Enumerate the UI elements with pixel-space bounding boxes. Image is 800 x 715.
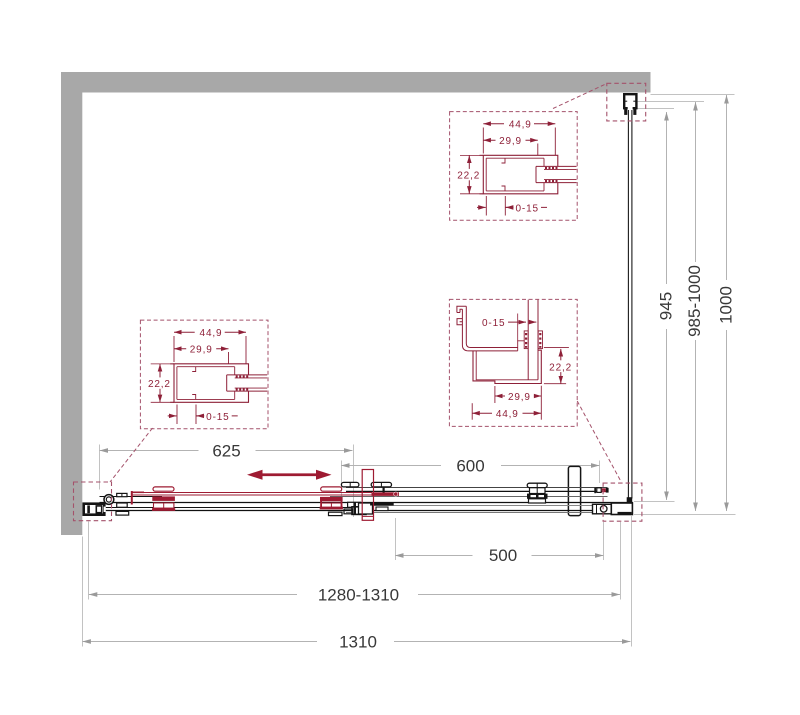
svg-text:22,2: 22,2 — [549, 362, 572, 373]
svg-text:625: 625 — [212, 441, 240, 460]
svg-text:1280-1310: 1280-1310 — [318, 586, 399, 605]
svg-text:1000: 1000 — [716, 286, 735, 324]
svg-text:945: 945 — [656, 292, 675, 320]
svg-text:985-1000: 985-1000 — [685, 265, 704, 337]
svg-text:0-15: 0-15 — [482, 318, 505, 329]
svg-text:44,9: 44,9 — [496, 409, 519, 420]
svg-text:500: 500 — [489, 546, 517, 565]
svg-text:600: 600 — [456, 457, 484, 476]
svg-text:1310: 1310 — [339, 633, 377, 652]
svg-text:29,9: 29,9 — [508, 392, 531, 403]
